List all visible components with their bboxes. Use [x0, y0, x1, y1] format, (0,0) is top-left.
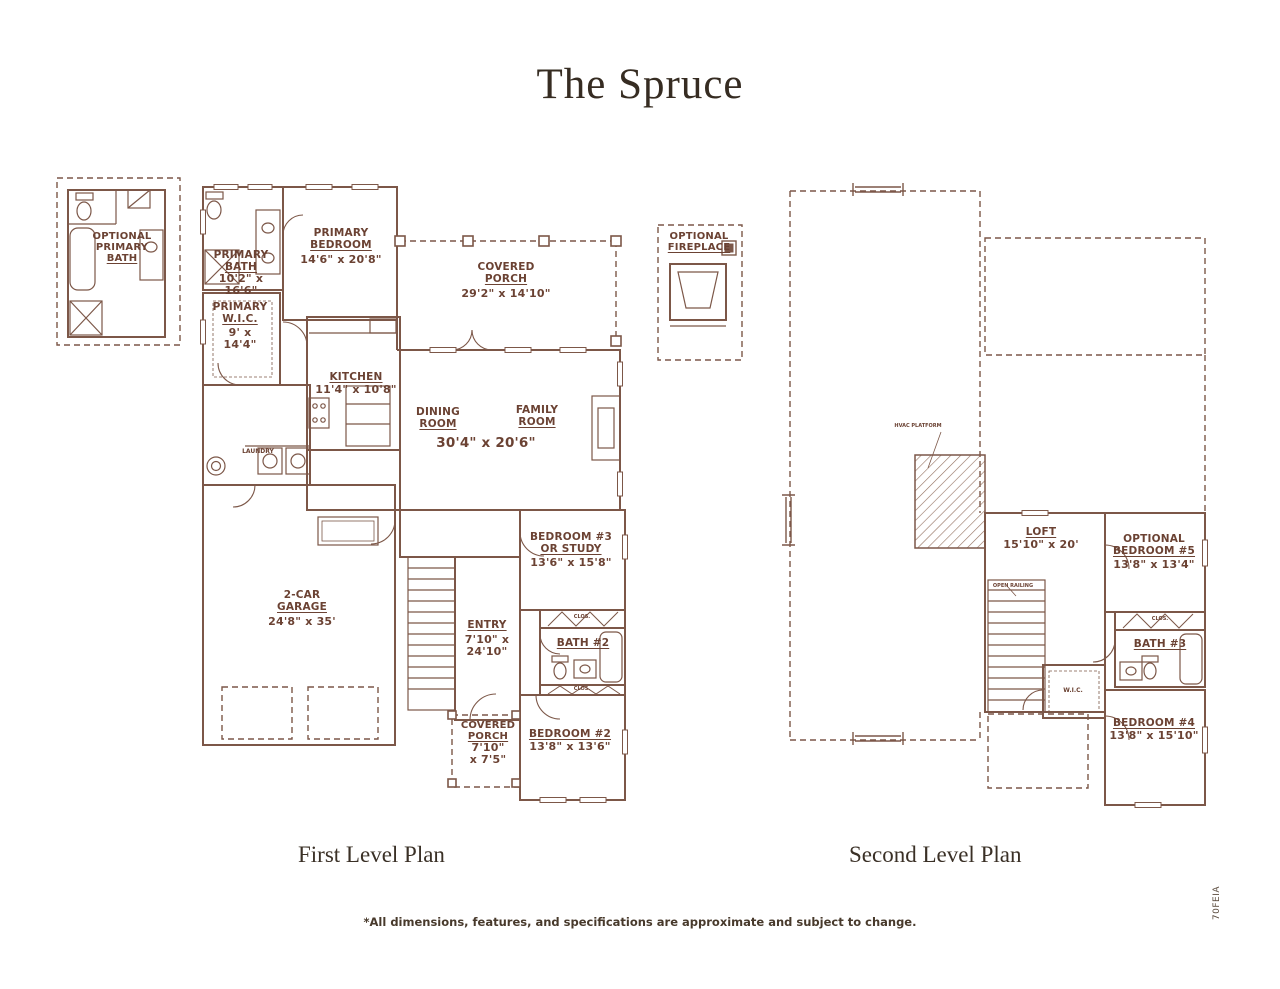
- label-closet-bed3: CLOS.: [574, 615, 590, 621]
- label-open-railing: OPEN RAILING: [993, 584, 1033, 590]
- second-level-stairs: [988, 580, 1045, 712]
- first-level-caption: First Level Plan: [298, 842, 445, 868]
- label-dining-family-dims: 30'4" x 20'6": [436, 436, 535, 451]
- label-bedroom2: BEDROOM #2 13'8" x 13'6": [529, 729, 611, 753]
- label-loft: LOFT 15'10" x 20': [1003, 527, 1079, 551]
- label-optional-primary-bath: OPTIONAL PRIMARY BATH: [93, 231, 152, 264]
- label-kitchen: KITCHEN 11'4" x 10'8": [315, 372, 396, 396]
- roof-markers: [782, 183, 903, 745]
- porch-columns: [395, 236, 621, 787]
- label-primary-bath: PRIMARY BATH 10'2" x 16'6": [214, 250, 269, 297]
- floor-plan-drawing: [0, 0, 1280, 989]
- label-entry: ENTRY 7'10" x 24'10": [465, 620, 509, 658]
- label-bath2: BATH #2: [557, 638, 609, 650]
- second-level-drawing: [782, 183, 1208, 808]
- plan-code: 70FEIA: [1212, 882, 1222, 924]
- first-level-stairs: [408, 557, 455, 710]
- label-closet-bed2: CLOS.: [574, 687, 590, 693]
- page-title: The Spruce: [0, 60, 1280, 109]
- label-primary-wic: PRIMARY W.I.C. 9' x 14'4": [213, 302, 268, 351]
- label-dining-room: DINING ROOM: [416, 407, 460, 430]
- label-hvac-platform: HVAC PLATFORM: [894, 424, 941, 430]
- label-garage: 2-CAR GARAGE 24'8" x 35': [268, 590, 336, 628]
- hvac-platform-area: [915, 455, 985, 548]
- label-bath3: BATH #3: [1134, 639, 1186, 651]
- second-level-dashed-lines: [790, 191, 1205, 788]
- optional-fireplace-drawing: [670, 241, 736, 326]
- label-wic-second: W.I.C.: [1063, 688, 1083, 695]
- label-laundry: LAUNDRY: [242, 449, 274, 456]
- label-family-room: FAMILY ROOM: [516, 405, 558, 428]
- second-level-caption: Second Level Plan: [849, 842, 1021, 868]
- label-closet-bed5: CLOS.: [1152, 617, 1168, 623]
- label-rear-covered-porch: COVERED PORCH 7'10" x 7'5": [461, 720, 515, 766]
- first-level-drawing: [57, 178, 742, 803]
- label-optional-fireplace: OPTIONAL FIREPLACE: [668, 231, 731, 253]
- label-primary-bedroom: PRIMARY BEDROOM 14'6" x 20'8": [300, 228, 381, 266]
- label-covered-porch: COVERED PORCH 29'2" x 14'10": [461, 262, 550, 300]
- label-optional-bedroom5: OPTIONAL BEDROOM #5 13'8" x 13'4": [1113, 534, 1195, 571]
- disclaimer-text: *All dimensions, features, and specifica…: [0, 915, 1280, 929]
- label-bedroom4: BEDROOM #4 13'8" x 15'10": [1109, 718, 1198, 742]
- label-bedroom3: BEDROOM #3 OR STUDY 13'6" x 15'8": [530, 532, 612, 569]
- second-level-doors: [1023, 545, 1129, 740]
